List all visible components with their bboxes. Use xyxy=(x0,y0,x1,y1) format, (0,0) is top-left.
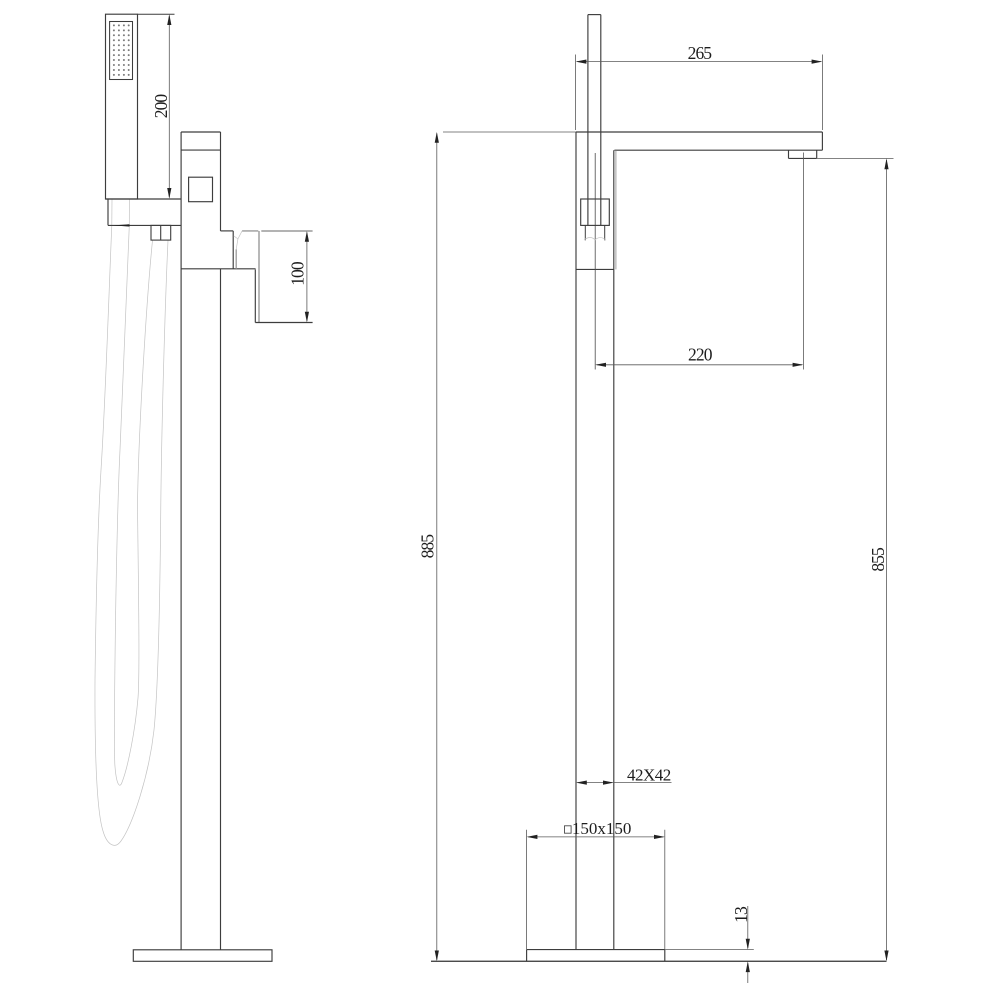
svg-text:150x150: 150x150 xyxy=(572,819,632,838)
svg-text:42X42: 42X42 xyxy=(627,766,671,785)
svg-text:220: 220 xyxy=(688,344,713,364)
svg-text:100: 100 xyxy=(287,261,307,286)
svg-text:200: 200 xyxy=(151,94,171,119)
svg-text:885: 885 xyxy=(418,534,438,559)
svg-text:855: 855 xyxy=(868,547,888,572)
svg-text:265: 265 xyxy=(688,43,713,63)
svg-text:13: 13 xyxy=(731,906,751,923)
